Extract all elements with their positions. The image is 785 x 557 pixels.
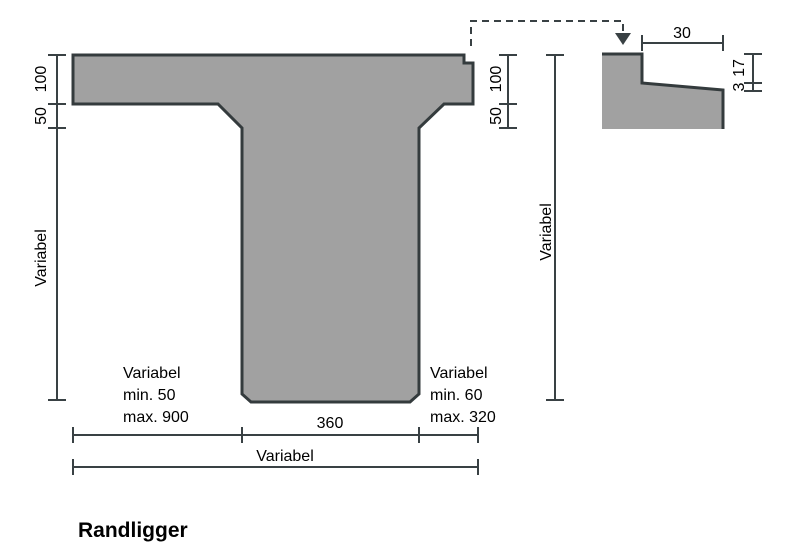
dim-label-detail-slope-drop: 3 <box>731 82 748 91</box>
note-left-line3: max. 900 <box>123 409 189 426</box>
dim-label-left-web-height: Variabel <box>33 229 50 287</box>
dim-label-detail-edge-drop: 17 <box>731 59 748 77</box>
note-left-flange-overhang: Variabel min. 50 max. 900 <box>123 365 189 426</box>
detail-leader-line <box>471 21 623 46</box>
dim-label-overall-width: Variabel <box>256 448 314 465</box>
dim-label-overall-height: Variabel <box>538 203 555 261</box>
detail-shape <box>602 54 723 129</box>
dim-label-right-flange: 100 <box>488 66 505 93</box>
dim-label-left-flange: 100 <box>33 66 50 93</box>
dim-label-web-width: 360 <box>317 415 344 432</box>
note-right-line1: Variabel <box>430 365 488 382</box>
beam-drawing-page: 100 50 Variabel 100 50 Variabel 30 17 3 … <box>0 0 785 557</box>
drawing-title: Randligger <box>78 519 188 542</box>
note-left-line1: Variabel <box>123 365 181 382</box>
dim-label-left-haunch: 50 <box>33 107 50 125</box>
note-right-flange-overhang: Variabel min. 60 max. 320 <box>430 365 496 426</box>
note-left-line2: min. 50 <box>123 387 176 404</box>
dim-label-right-haunch: 50 <box>488 107 505 125</box>
dim-left-height <box>48 55 66 400</box>
dim-bottom-chain <box>73 427 478 443</box>
leader-arrow-icon <box>615 33 631 45</box>
dim-label-detail-width: 30 <box>673 25 691 42</box>
main-section-shape <box>73 55 473 402</box>
note-right-line2: min. 60 <box>430 387 483 404</box>
beam-cross-section-drawing: 100 50 Variabel 100 50 Variabel 30 17 3 … <box>0 0 785 557</box>
note-right-line3: max. 320 <box>430 409 496 426</box>
